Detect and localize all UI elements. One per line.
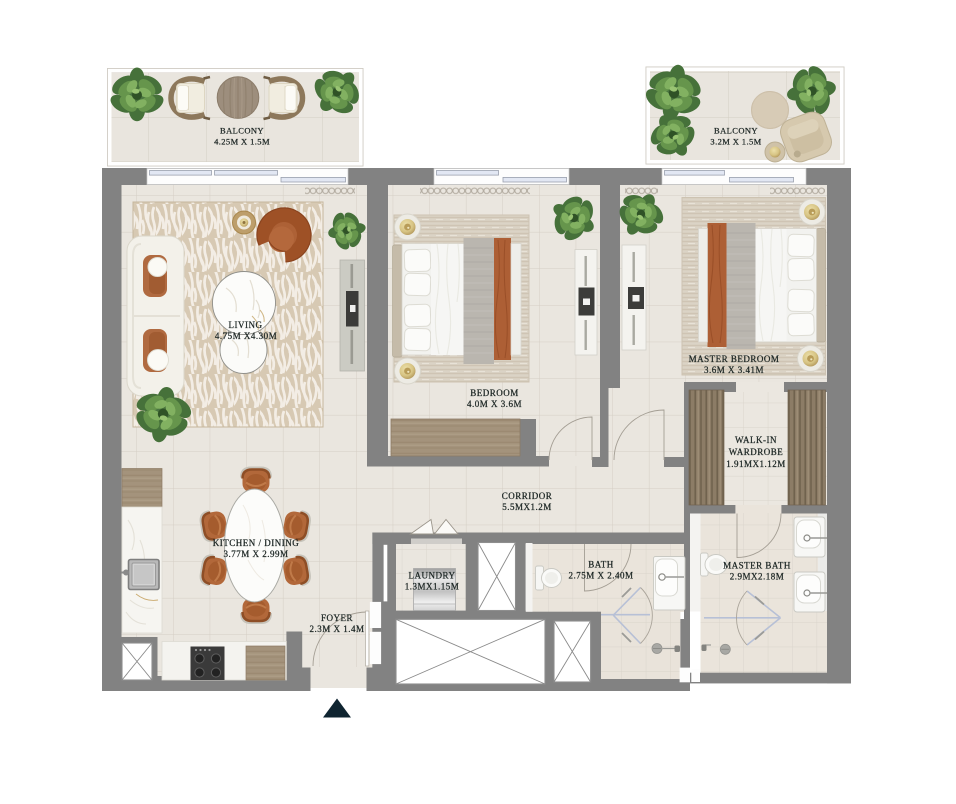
svg-text:BALCONY: BALCONY <box>220 126 264 136</box>
svg-text:CORRIDOR: CORRIDOR <box>502 491 553 501</box>
svg-text:1.3MX1.15M: 1.3MX1.15M <box>405 582 460 592</box>
svg-text:3.2M X 1.5M: 3.2M X 1.5M <box>710 137 761 147</box>
svg-text:LIVING: LIVING <box>229 320 263 330</box>
svg-text:BALCONY: BALCONY <box>714 126 758 136</box>
svg-text:3.77M X 2.99M: 3.77M X 2.99M <box>223 549 288 559</box>
svg-text:5.5MX1.2M: 5.5MX1.2M <box>502 502 552 512</box>
svg-text:2.3M X 1.4M: 2.3M X 1.4M <box>309 624 364 634</box>
svg-text:BEDROOM: BEDROOM <box>470 388 519 398</box>
svg-text:4.75M X4.30M: 4.75M X4.30M <box>215 331 277 341</box>
svg-text:4.25M X 1.5M: 4.25M X 1.5M <box>214 137 270 147</box>
svg-text:2.75M X 2.40M: 2.75M X 2.40M <box>568 571 633 581</box>
svg-text:BATH: BATH <box>588 560 614 570</box>
svg-text:LAUNDRY: LAUNDRY <box>408 571 455 581</box>
svg-text:4.0M X 3.6M: 4.0M X 3.6M <box>467 399 522 409</box>
svg-text:WARDROBE: WARDROBE <box>729 447 784 457</box>
svg-text:MASTER BEDROOM: MASTER BEDROOM <box>689 354 780 364</box>
svg-text:1.91MX1.12M: 1.91MX1.12M <box>726 459 786 469</box>
svg-text:WALK-IN: WALK-IN <box>735 435 777 445</box>
svg-text:FOYER: FOYER <box>321 613 353 623</box>
svg-text:MASTER BATH: MASTER BATH <box>723 561 791 571</box>
svg-text:3.6M X 3.41M: 3.6M X 3.41M <box>704 365 764 375</box>
svg-text:KITCHEN / DINING: KITCHEN / DINING <box>213 538 300 548</box>
svg-text:2.9MX2.18M: 2.9MX2.18M <box>730 572 785 582</box>
